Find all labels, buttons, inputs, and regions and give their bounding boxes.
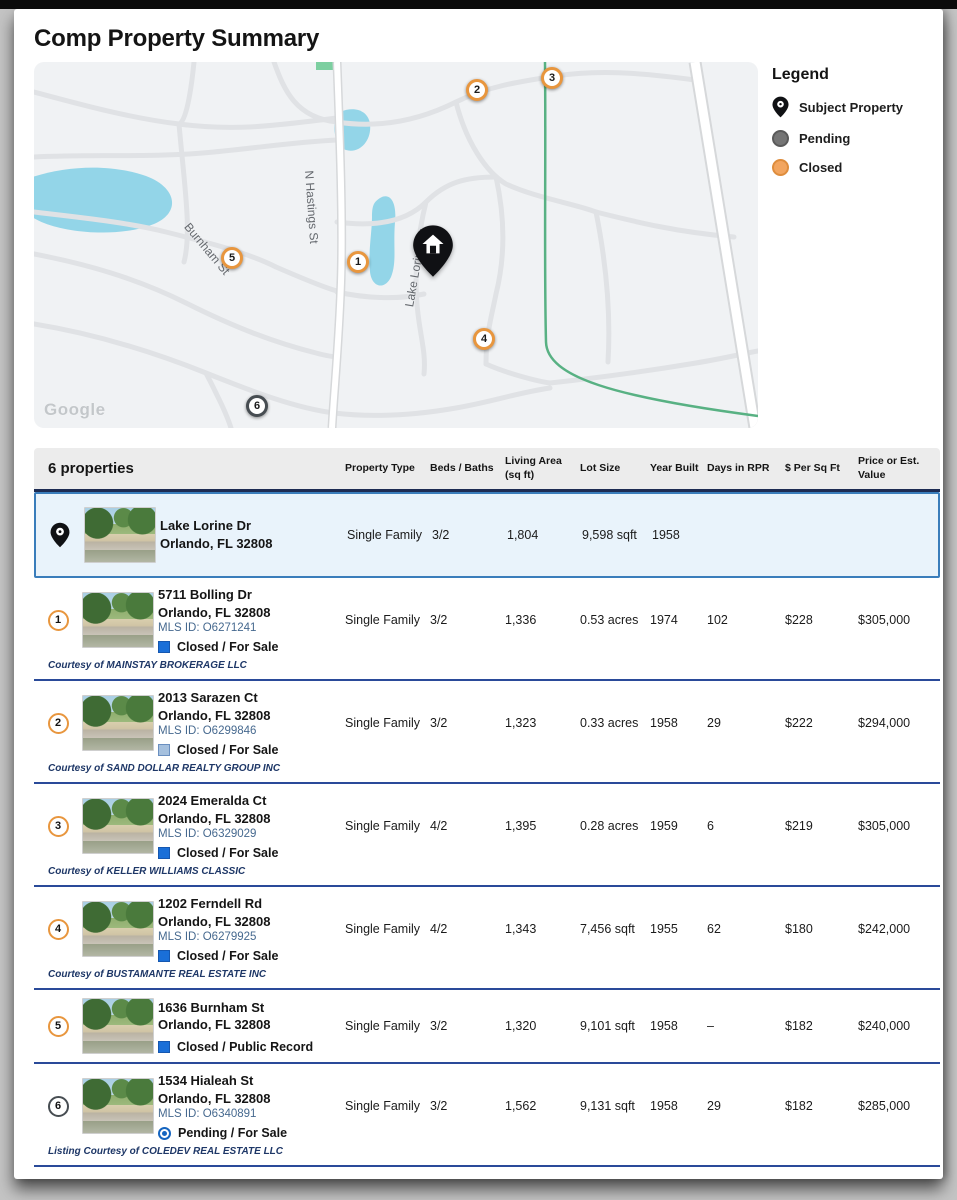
property-city: Orlando, FL 32808 <box>158 707 339 725</box>
col-property-type: Property Type <box>345 462 430 476</box>
year-built-value: 1958 <box>650 1099 707 1113</box>
comp-number-badge: 3 <box>48 816 69 837</box>
lot-size-value: 7,456 sqft <box>580 922 650 936</box>
property-address[interactable]: 1534 Hialeah St <box>158 1072 339 1090</box>
table-row[interactable]: 3 2024 Emeralda Ct Orlando, FL 32808 MLS… <box>34 784 940 887</box>
property-address[interactable]: 2024 Emeralda Ct <box>158 792 339 810</box>
screen: Comp Property Summary <box>0 0 957 1200</box>
days-in-rpr-value: 62 <box>707 922 785 936</box>
price-per-sqft-value: $182 <box>785 1019 858 1033</box>
col-beds-baths: Beds / Baths <box>430 462 505 476</box>
mls-id: MLS ID: O6340891 <box>158 1108 339 1120</box>
closed-dot-icon <box>772 159 789 176</box>
subject-pin-icon <box>50 522 70 548</box>
price-value: $305,000 <box>858 613 940 627</box>
price-per-sqft-value: $222 <box>785 716 858 730</box>
col-price: Price or Est. Value <box>858 455 940 482</box>
beds-baths-value: 3/2 <box>430 613 505 627</box>
table-row[interactable]: 5 1636 Burnham St Orlando, FL 32808 Clos… <box>34 990 940 1064</box>
property-type-value: Single Family <box>345 922 430 936</box>
living-area-value: 1,804 <box>507 528 582 542</box>
price-value: $285,000 <box>858 1099 940 1113</box>
closed-square-icon <box>158 950 170 962</box>
beds-baths-value: 3/2 <box>430 716 505 730</box>
property-type-value: Single Family <box>345 716 430 730</box>
comp-map[interactable]: N Hastings St Burnham St Lake Lorine Dr … <box>34 62 758 428</box>
status-label: Pending / For Sale <box>178 1126 287 1140</box>
living-area-value: 1,336 <box>505 613 580 627</box>
map-roads-water <box>34 62 758 428</box>
status-label: Closed / Public Record <box>177 1040 313 1054</box>
property-photo[interactable] <box>82 592 154 648</box>
subject-property-pin[interactable] <box>412 224 454 278</box>
property-city: Orlando, FL 32808 <box>158 604 339 622</box>
status-badge: Pending / For Sale <box>158 1126 339 1140</box>
map-marker-2[interactable]: 2 <box>466 79 488 101</box>
property-address[interactable]: 1636 Burnham St <box>158 999 339 1017</box>
property-city: Orlando, FL 32808 <box>158 1016 339 1034</box>
status-label: Closed / For Sale <box>177 846 278 860</box>
page-title: Comp Property Summary <box>34 25 319 53</box>
property-address[interactable]: 5711 Bolling Dr <box>158 586 339 604</box>
beds-baths-value: 4/2 <box>430 922 505 936</box>
legend-label: Pending <box>799 131 850 146</box>
property-type-value: Single Family <box>345 819 430 833</box>
lot-size-value: 0.33 acres <box>580 716 650 730</box>
pending-dot-icon <box>772 130 789 147</box>
google-logo[interactable]: Google <box>44 400 106 420</box>
mls-id: MLS ID: O6299846 <box>158 725 339 737</box>
col-year-built: Year Built <box>650 462 707 476</box>
property-photo[interactable] <box>82 901 154 957</box>
living-area-value: 1,320 <box>505 1019 580 1033</box>
table-row[interactable]: 2 2013 Sarazen Ct Orlando, FL 32808 MLS … <box>34 681 940 784</box>
year-built-value: 1959 <box>650 819 707 833</box>
days-in-rpr-value: 6 <box>707 819 785 833</box>
col-lot-size: Lot Size <box>580 462 650 476</box>
days-in-rpr-value: 29 <box>707 1099 785 1113</box>
lot-size-value: 0.53 acres <box>580 613 650 627</box>
price-per-sqft-value: $228 <box>785 613 858 627</box>
closed-square-icon <box>158 847 170 859</box>
closed-square-icon <box>158 744 170 756</box>
property-photo[interactable] <box>82 1078 154 1134</box>
window-top-edge <box>0 0 957 9</box>
comp-table: 6 properties Property Type Beds / Baths … <box>34 448 940 1167</box>
courtesy-text: Courtesy of SAND DOLLAR REALTY GROUP INC <box>34 757 940 782</box>
property-photo[interactable] <box>84 507 156 563</box>
table-row[interactable]: 4 1202 Ferndell Rd Orlando, FL 32808 MLS… <box>34 887 940 990</box>
comp-number-badge: 5 <box>48 1016 69 1037</box>
status-label: Closed / For Sale <box>177 743 278 757</box>
lot-size-value: 9,101 sqft <box>580 1019 650 1033</box>
property-type-value: Single Family <box>345 1099 430 1113</box>
property-photo[interactable] <box>82 998 154 1054</box>
price-value: $294,000 <box>858 716 940 730</box>
legend-label: Closed <box>799 160 842 175</box>
map-marker-4[interactable]: 4 <box>473 328 495 350</box>
closed-square-icon <box>158 641 170 653</box>
beds-baths-value: 3/2 <box>430 1099 505 1113</box>
pending-ring-icon <box>158 1127 171 1140</box>
col-price-per-sqft: $ Per Sq Ft <box>785 462 858 476</box>
status-label: Closed / For Sale <box>177 640 278 654</box>
comp-number-badge: 4 <box>48 919 69 940</box>
col-days-in-rpr: Days in RPR <box>707 462 785 476</box>
table-row[interactable]: 1 5711 Bolling Dr Orlando, FL 32808 MLS … <box>34 578 940 681</box>
comp-number-badge: 2 <box>48 713 69 734</box>
days-in-rpr-value: 29 <box>707 716 785 730</box>
legend-item-closed: Closed <box>772 159 940 176</box>
price-per-sqft-value: $182 <box>785 1099 858 1113</box>
beds-baths-value: 4/2 <box>430 819 505 833</box>
legend-item-pending: Pending <box>772 130 940 147</box>
price-value: $305,000 <box>858 819 940 833</box>
status-badge: Closed / Public Record <box>158 1040 339 1054</box>
mls-id: MLS ID: O6279925 <box>158 931 339 943</box>
property-address[interactable]: Lake Lorine Dr <box>160 517 341 535</box>
table-row-subject[interactable]: Lake Lorine Dr Orlando, FL 32808 Single … <box>34 492 940 578</box>
map-marker-6[interactable]: 6 <box>246 395 268 417</box>
courtesy-text: Courtesy of KELLER WILLIAMS CLASSIC <box>34 860 940 885</box>
table-header: 6 properties Property Type Beds / Baths … <box>34 448 940 492</box>
price-per-sqft-value: $219 <box>785 819 858 833</box>
property-count: 6 properties <box>34 460 345 477</box>
property-photo[interactable] <box>82 798 154 854</box>
comp-number-badge: 6 <box>48 1096 69 1117</box>
legend: Legend Subject Property Pending Closed <box>772 66 940 188</box>
status-badge: Closed / For Sale <box>158 640 339 654</box>
status-label: Closed / For Sale <box>177 949 278 963</box>
lot-size-value: 9,131 sqft <box>580 1099 650 1113</box>
mls-id: MLS ID: O6329029 <box>158 828 339 840</box>
price-value: $240,000 <box>858 1019 940 1033</box>
closed-square-icon <box>158 1041 170 1053</box>
table-row[interactable]: 6 1534 Hialeah St Orlando, FL 32808 MLS … <box>34 1064 940 1165</box>
courtesy-text: Courtesy of BUSTAMANTE REAL ESTATE INC <box>34 963 940 988</box>
courtesy-text: Courtesy of MAINSTAY BROKERAGE LLC <box>34 654 940 679</box>
price-per-sqft-value: $180 <box>785 922 858 936</box>
property-photo[interactable] <box>82 695 154 751</box>
map-marker-5[interactable]: 5 <box>221 247 243 269</box>
property-city: Orlando, FL 32808 <box>158 810 339 828</box>
year-built-value: 1974 <box>650 613 707 627</box>
price-value: $242,000 <box>858 922 940 936</box>
property-type-value: Single Family <box>347 528 432 542</box>
property-address[interactable]: 1202 Ferndell Rd <box>158 895 339 913</box>
legend-item-subject: Subject Property <box>772 96 940 118</box>
lot-size-value: 0.28 acres <box>580 819 650 833</box>
year-built-value: 1958 <box>650 716 707 730</box>
legend-title: Legend <box>772 66 940 84</box>
property-city: Orlando, FL 32808 <box>158 1090 339 1108</box>
living-area-value: 1,343 <box>505 922 580 936</box>
report-page: Comp Property Summary <box>14 9 943 1179</box>
year-built-value: 1955 <box>650 922 707 936</box>
map-marker-1[interactable]: 1 <box>347 251 369 273</box>
status-badge: Closed / For Sale <box>158 846 339 860</box>
year-built-value: 1958 <box>652 528 709 542</box>
days-in-rpr-value: 102 <box>707 613 785 627</box>
living-area-value: 1,562 <box>505 1099 580 1113</box>
year-built-value: 1958 <box>650 1019 707 1033</box>
courtesy-text: Listing Courtesy of COLEDEV REAL ESTATE … <box>34 1140 940 1165</box>
beds-baths-value: 3/2 <box>430 1019 505 1033</box>
lot-size-value: 9,598 sqft <box>582 528 652 542</box>
status-badge: Closed / For Sale <box>158 949 339 963</box>
comp-number-badge: 1 <box>48 610 69 631</box>
map-marker-3[interactable]: 3 <box>541 67 563 89</box>
subject-pin-icon <box>772 96 789 118</box>
pond-middle <box>369 196 395 285</box>
property-type-value: Single Family <box>345 613 430 627</box>
property-city: Orlando, FL 32808 <box>158 913 339 931</box>
property-address[interactable]: 2013 Sarazen Ct <box>158 689 339 707</box>
property-city: Orlando, FL 32808 <box>160 535 341 553</box>
living-area-value: 1,395 <box>505 819 580 833</box>
status-badge: Closed / For Sale <box>158 743 339 757</box>
legend-label: Subject Property <box>799 100 903 115</box>
beds-baths-value: 3/2 <box>432 528 507 542</box>
property-type-value: Single Family <box>345 1019 430 1033</box>
col-living-area: Living Area (sq ft) <box>505 455 580 482</box>
living-area-value: 1,323 <box>505 716 580 730</box>
mls-id: MLS ID: O6271241 <box>158 622 339 634</box>
days-in-rpr-value: – <box>707 1019 785 1033</box>
